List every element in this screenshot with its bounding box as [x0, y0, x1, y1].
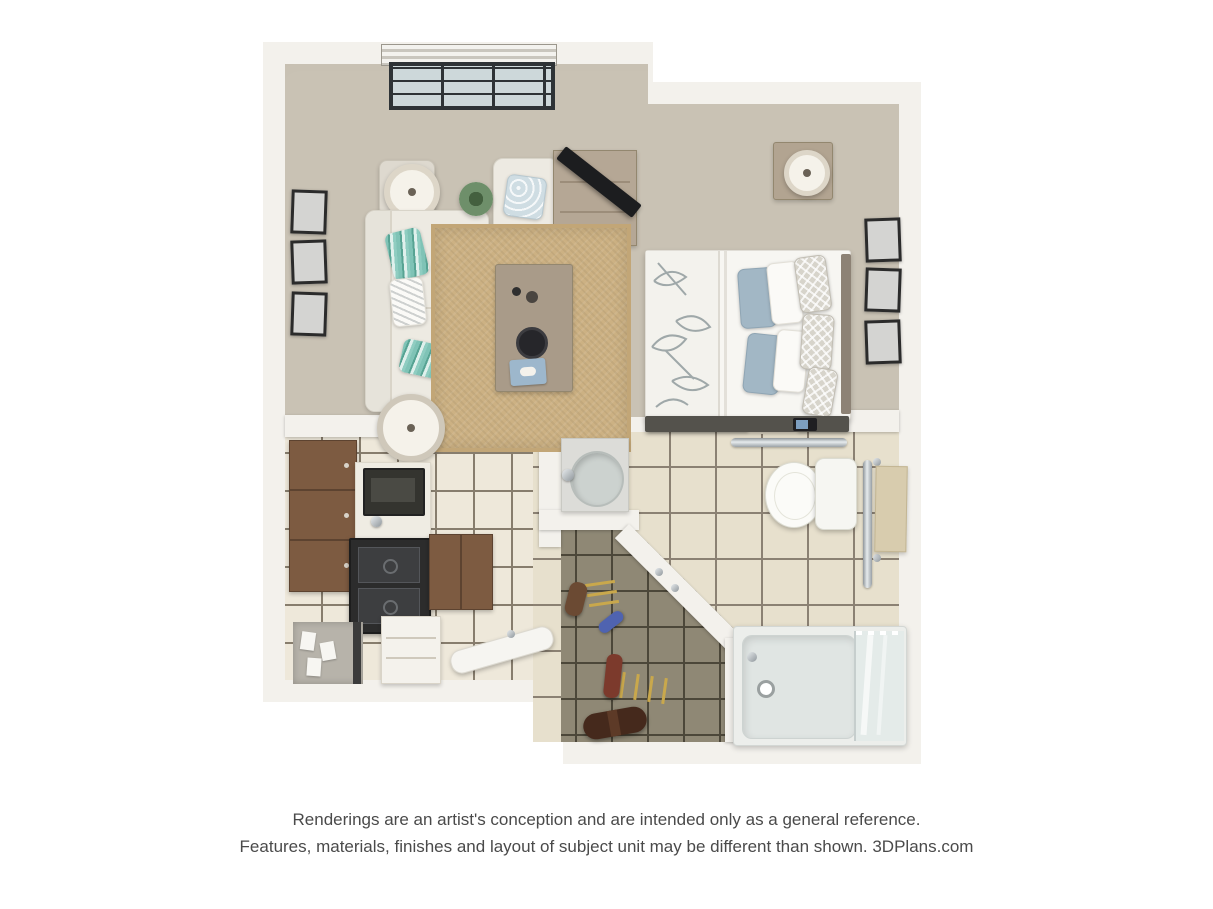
armchair-pillow	[502, 173, 547, 220]
hanging-towel	[874, 466, 907, 553]
kitchen-faucet	[371, 516, 382, 527]
floor-lamp	[377, 394, 445, 462]
cabinet-handle-2	[344, 513, 349, 518]
microwave-front	[371, 478, 415, 502]
glass-shower-panel	[854, 631, 904, 741]
toilet-seat-line	[774, 472, 816, 520]
grab-bar-top	[731, 438, 847, 447]
floor-plan-rendering: Renderings are an artist's conception an…	[0, 0, 1213, 909]
tablet-on-bench	[793, 418, 817, 431]
duffel-strap	[607, 710, 621, 737]
paper-1	[300, 631, 316, 651]
decor-bowl	[516, 327, 548, 359]
cabinet-door-seam-1	[290, 489, 356, 491]
bathtub	[733, 626, 907, 746]
range-burner-ring-1	[383, 559, 398, 574]
wall-hook-2	[671, 584, 679, 592]
marble-vanity	[561, 438, 629, 512]
leaf-print-duvet	[646, 251, 720, 419]
drawer-line-1	[386, 637, 436, 639]
microwave	[363, 468, 425, 516]
towel-rail-post-2	[873, 554, 881, 562]
headboard	[841, 254, 851, 414]
decor-figurine-1	[512, 287, 521, 296]
disclaimer-line-2: Features, materials, finishes and layout…	[0, 833, 1213, 860]
paper-3	[306, 658, 321, 677]
wall-art-frame-3	[290, 291, 328, 336]
sheet-fold-line	[724, 251, 727, 419]
vanity-sink-basin	[570, 451, 624, 507]
range-burner-ring-2	[383, 600, 398, 615]
bedroom-wall-art-1	[864, 217, 902, 262]
drawer-dresser	[381, 616, 441, 684]
patterned-pillow-2	[799, 313, 835, 371]
base-cabinet	[429, 534, 493, 610]
cabinet-handle-1	[344, 463, 349, 468]
nightstand-lamp	[784, 150, 830, 196]
toilet-tank	[815, 458, 857, 530]
tablet-screen	[796, 420, 808, 429]
disclaimer-line-1: Renderings are an artist's conception an…	[0, 806, 1213, 833]
tub-faucet-knob	[747, 652, 757, 662]
glass-highlight-1	[861, 635, 874, 735]
book-tray	[509, 358, 547, 386]
glass-highlight-2	[877, 635, 888, 735]
wall-art-frame-2	[290, 239, 328, 284]
upper-cabinets	[289, 440, 357, 592]
wall-hook-1	[655, 568, 663, 576]
bedroom-wall-art-3	[864, 319, 902, 364]
base-cabinet-seam	[460, 535, 462, 609]
nightstand-lamp-finial	[803, 169, 811, 177]
range-panel-1	[358, 547, 420, 583]
coffee-table	[495, 264, 573, 392]
glass-top-highlight	[856, 631, 904, 635]
floral-pillow	[389, 276, 428, 327]
vanity-niche-bottom-wall	[539, 510, 639, 530]
disclaimer: Renderings are an artist's conception an…	[0, 806, 1213, 860]
wall-art-frame-1	[290, 189, 328, 234]
bedroom-wall-art-2	[864, 267, 902, 312]
cabinet-door-seam-2	[290, 539, 356, 541]
apartment-plan	[253, 42, 935, 770]
foot-bench	[645, 416, 849, 432]
grab-bar-side	[863, 460, 872, 588]
remote-on-tray	[520, 366, 537, 376]
wall-bracket	[507, 630, 515, 638]
floor-lamp-finial	[407, 424, 415, 432]
paper-2	[320, 641, 337, 661]
vanity-faucet	[562, 469, 574, 481]
tv-console-shelf-line-2	[560, 211, 630, 213]
drawer-line-2	[386, 657, 436, 659]
decor-figurine-2	[526, 291, 538, 303]
table-lamp-finial	[408, 188, 416, 196]
tub-drain	[757, 680, 775, 698]
potted-plant	[459, 182, 493, 216]
desk-nook	[293, 622, 363, 684]
desk-nook-shelf-edge	[353, 622, 361, 684]
living-room-window	[389, 62, 555, 110]
tub-basin	[742, 635, 856, 739]
duvet-leaf-pattern	[646, 251, 718, 419]
